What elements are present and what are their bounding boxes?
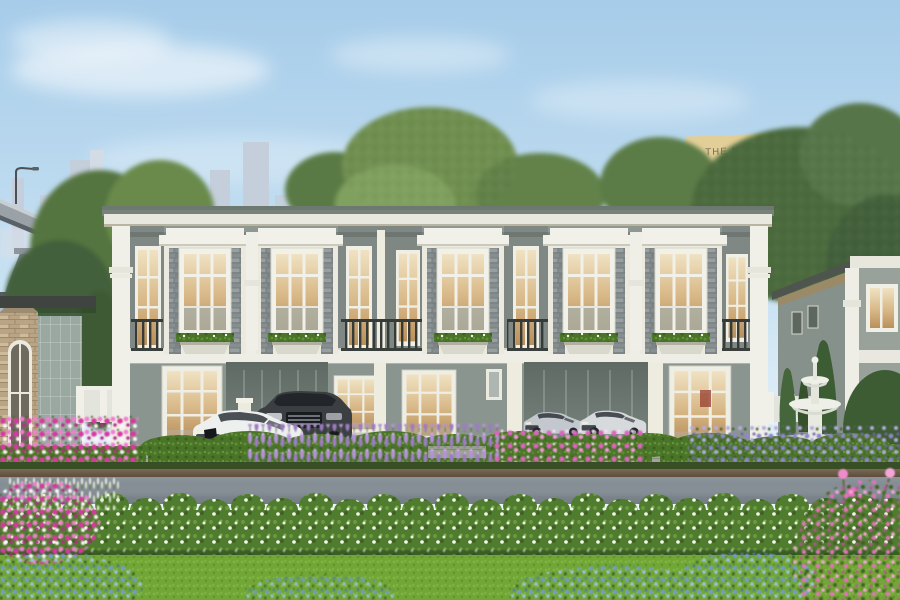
white-flower-hedge (0, 493, 900, 557)
bay-window-5 (635, 228, 727, 362)
townhome-exterior-scene: THE MALL SHOPPING CENTER M (0, 0, 900, 600)
bay-window-1 (159, 228, 251, 362)
bay-window-3 (417, 228, 509, 362)
townhouse-building (102, 206, 774, 456)
scene-canvas: THE MALL SHOPPING CENTER M (0, 0, 900, 600)
bay-window-2 (251, 228, 343, 362)
bay-window-4 (543, 228, 635, 362)
clerestory-window (486, 369, 502, 400)
